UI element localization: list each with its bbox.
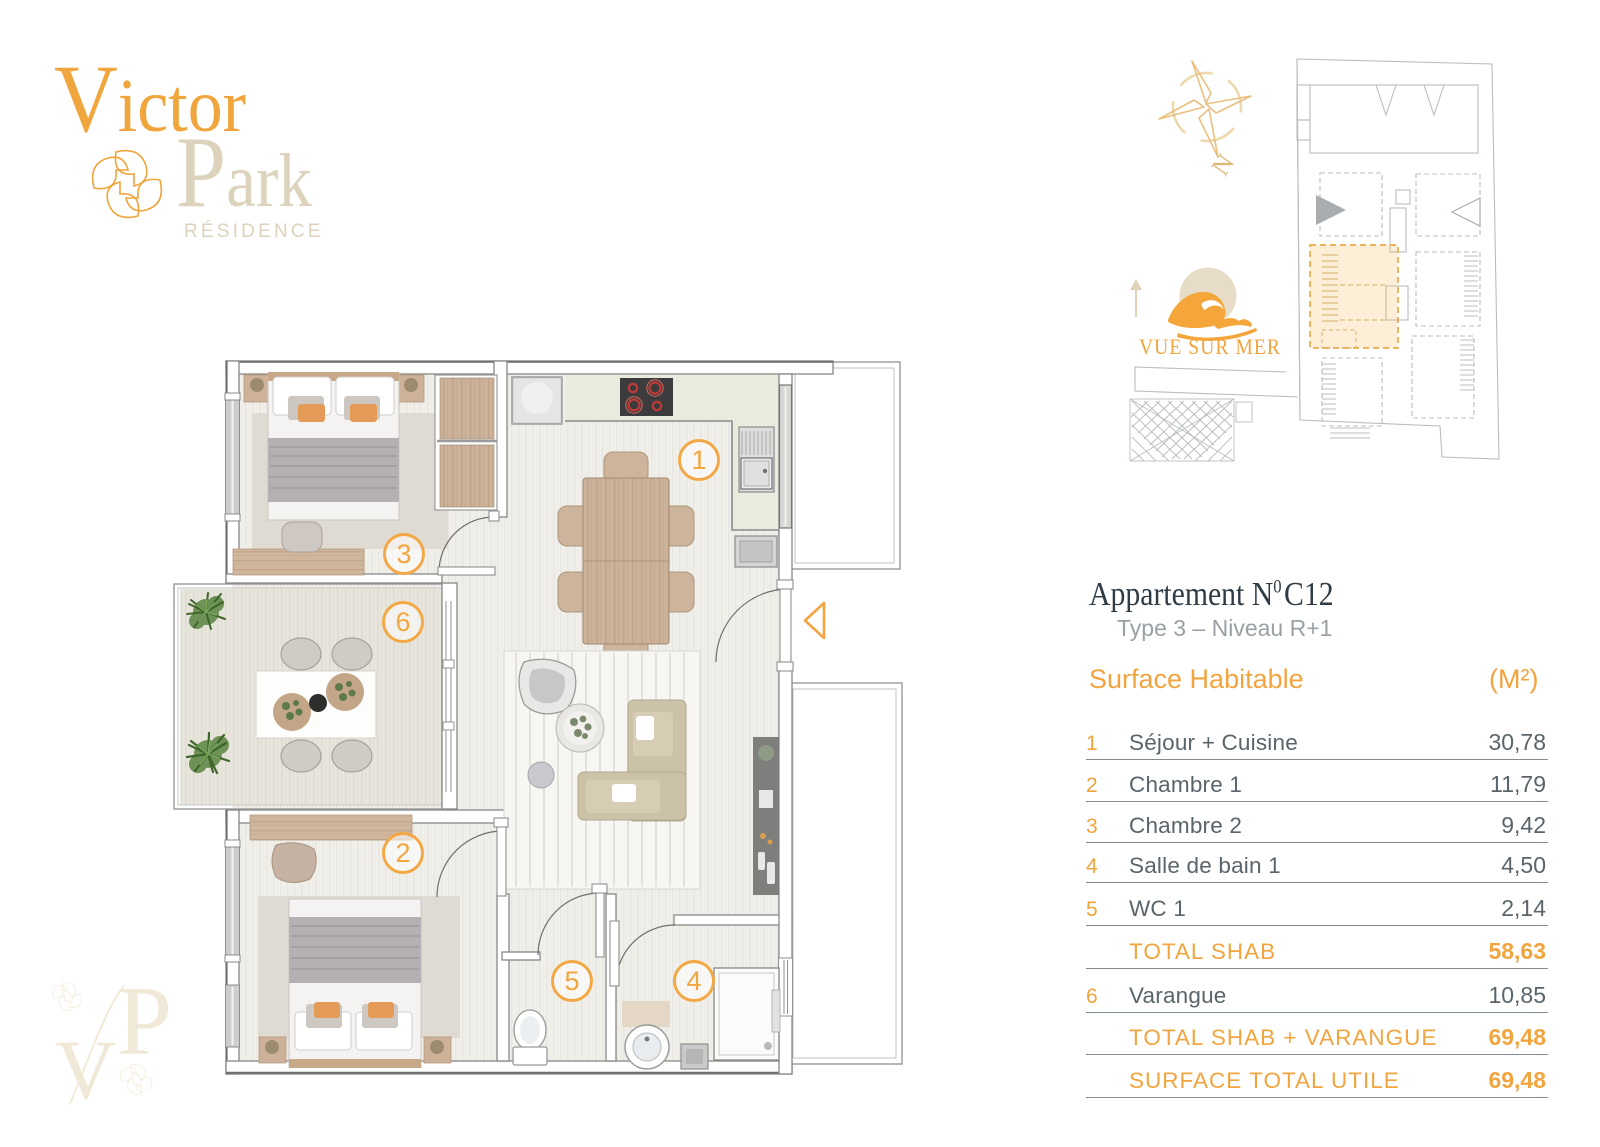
svg-text:5: 5 (564, 966, 579, 996)
svg-text:1: 1 (691, 445, 706, 475)
svg-text:P: P (117, 967, 172, 1076)
svg-text:N: N (1206, 149, 1241, 181)
svg-text:VUE SUR MER: VUE SUR MER (1139, 334, 1281, 359)
svg-text:6: 6 (395, 607, 410, 637)
svg-text:4: 4 (686, 966, 701, 996)
svg-text:3: 3 (396, 539, 411, 569)
svg-text:2: 2 (395, 838, 410, 868)
svg-text:V: V (55, 1023, 116, 1117)
